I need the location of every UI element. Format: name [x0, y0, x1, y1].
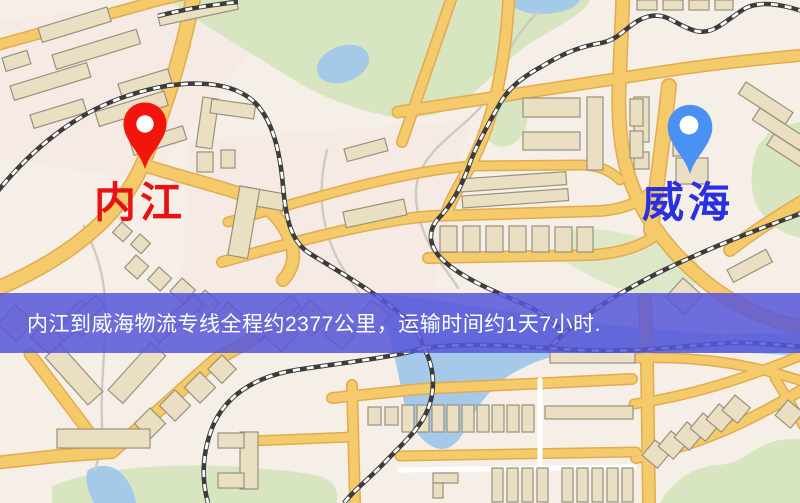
- map-screenshot: 内江 威海 内江到威海物流专线全程约2377公里，运输时间约1天7小时.: [0, 0, 800, 503]
- route-info-banner: 内江到威海物流专线全程约2377公里，运输时间约1天7小时.: [0, 293, 800, 353]
- map-canvas[interactable]: 内江 威海: [0, 0, 800, 503]
- origin-label: 内江: [94, 179, 186, 226]
- route-info-text: 内江到威海物流专线全程约2377公里，运输时间约1天7小时.: [27, 308, 601, 338]
- destination-label: 威海: [642, 179, 734, 226]
